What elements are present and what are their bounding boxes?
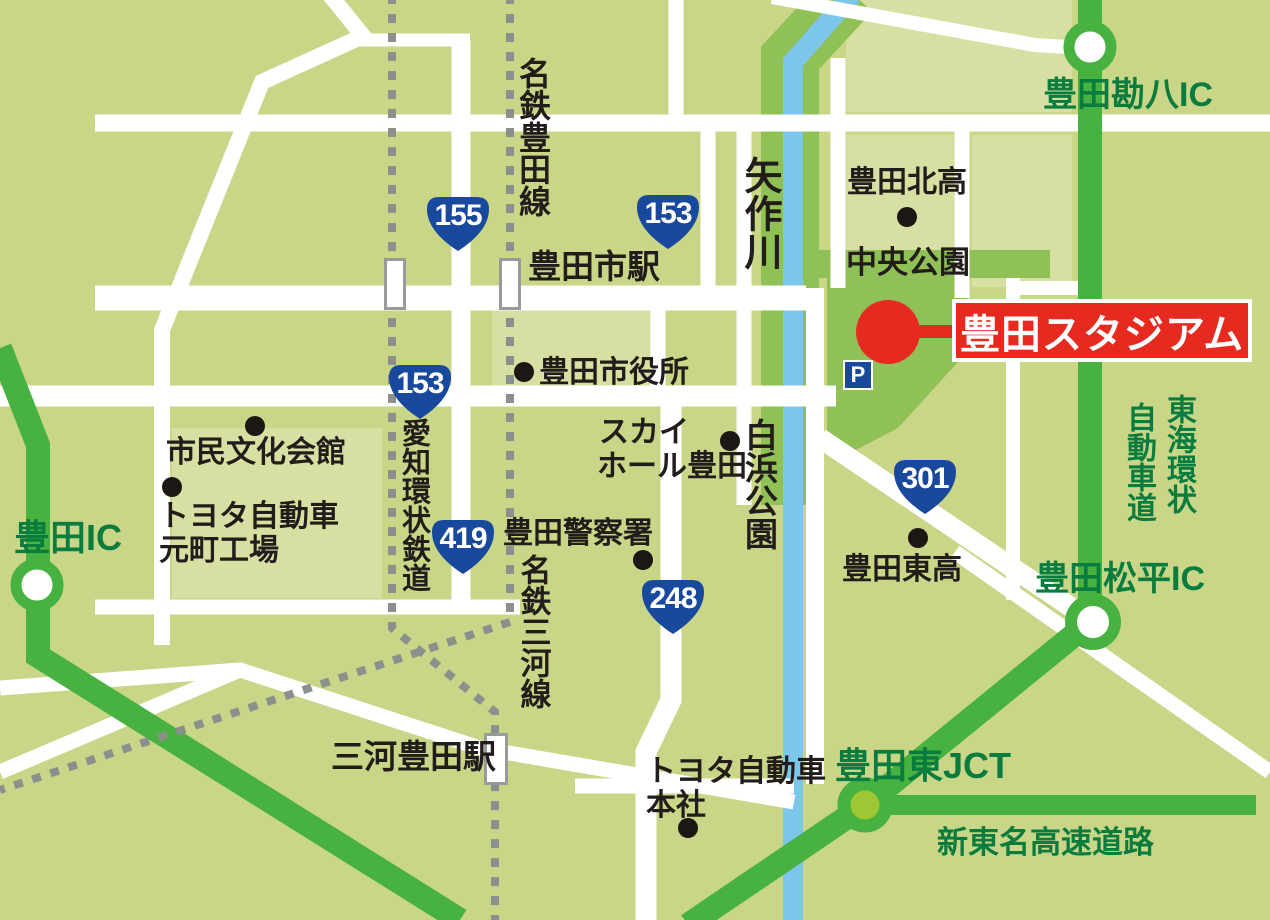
poi-label-bunka-kaikan: 市民文化会館 — [166, 436, 346, 470]
park-label-chuo-koen: 中央公園 — [846, 246, 970, 281]
ic-label-toyota-matsudaira: 豊田松平IC — [1035, 560, 1205, 598]
poi-dot-bunka-kaikan — [245, 416, 265, 436]
poi-label-higashi-high-school: 豊田東高 — [842, 553, 962, 587]
stadium-callout: 豊田スタジアム — [952, 299, 1252, 362]
jct-label-toyota-higashi: 豊田東JCT — [835, 746, 1011, 786]
poi-dot-city-hall — [514, 362, 534, 382]
toyotashi-station-marker — [384, 258, 406, 310]
park-label-shirahama-koen: 白浜公園 — [743, 418, 776, 550]
expressway-label-shin-tomei: 新東名高速道路 — [937, 826, 1154, 861]
expressway-label-tokai-kanjo-col2: 自動車道 — [1123, 402, 1153, 522]
poi-label-line2: 本社 — [646, 789, 826, 823]
toyota-higashi-jct-marker — [844, 784, 886, 826]
railway-label-meitetsu-toyota-line: 名鉄豊田線 — [517, 57, 549, 217]
railway-label-meitetsu-mikawa-line: 名鉄三河線 — [518, 554, 549, 709]
station-label-toyotashi: 豊田市駅 — [528, 249, 660, 286]
poi-label-motomachi-plant: トヨタ自動車 元町工場 — [159, 500, 339, 567]
expressway-label-tokai-kanjo-col1: 東海環状 — [1163, 394, 1193, 514]
poi-label-toyota-headquarters: トヨタ自動車 本社 — [646, 755, 826, 822]
route-badge-155: 155 — [424, 194, 492, 254]
poi-label-line1: スカイ — [599, 416, 747, 450]
route-number: 301 — [891, 462, 959, 496]
matsudaira-ic-marker — [1071, 600, 1115, 644]
poi-label-line2: 元町工場 — [159, 534, 339, 568]
station-label-mikawa-toyota: 三河豊田駅 — [331, 739, 496, 776]
poi-label-city-hall: 豊田市役所 — [539, 356, 689, 390]
toyota-ic-marker — [16, 564, 58, 606]
stadium-location-marker — [856, 300, 920, 364]
poi-label-line1: トヨタ自動車 — [646, 755, 826, 789]
poi-label-sky-hall: スカイ ホール豊田 — [599, 416, 747, 483]
poi-dot-higashi-high-school — [908, 528, 928, 548]
poi-dot-motomachi-plant — [162, 477, 182, 497]
route-number: 155 — [424, 199, 492, 233]
route-number: 248 — [639, 582, 707, 616]
poi-label-police-station: 豊田警察署 — [503, 517, 653, 551]
poi-dot-police-station — [633, 550, 653, 570]
river-label-yahagigawa: 矢作川 — [740, 156, 778, 270]
route-number: 153 — [634, 197, 702, 231]
route-badge-419: 419 — [429, 517, 497, 577]
parking-icon: P — [843, 360, 873, 390]
toyota-stadium-access-map: 155 153 153 419 301 248 市民文化 — [0, 0, 1270, 920]
toyotashi-station-marker-2 — [499, 258, 521, 310]
ic-label-toyota-kanpachi: 豊田勘八IC — [1043, 76, 1213, 114]
route-badge-153-north: 153 — [634, 192, 702, 252]
poi-dot-kita-high-school — [897, 207, 917, 227]
poi-label-kita-high-school: 豊田北高 — [847, 166, 967, 200]
route-number: 153 — [386, 367, 454, 401]
ic-label-toyota: 豊田IC — [14, 518, 122, 558]
railway-label-aichi-kanjo: 愛知環状鉄道 — [399, 418, 428, 592]
route-number: 419 — [429, 522, 497, 556]
route-badge-248: 248 — [639, 577, 707, 637]
poi-label-line1: トヨタ自動車 — [159, 500, 339, 534]
kanpachi-ic-marker — [1069, 26, 1111, 68]
route-badge-301: 301 — [891, 457, 959, 517]
route-badge-153-west: 153 — [386, 362, 454, 422]
poi-label-line2: ホール豊田 — [597, 450, 747, 484]
